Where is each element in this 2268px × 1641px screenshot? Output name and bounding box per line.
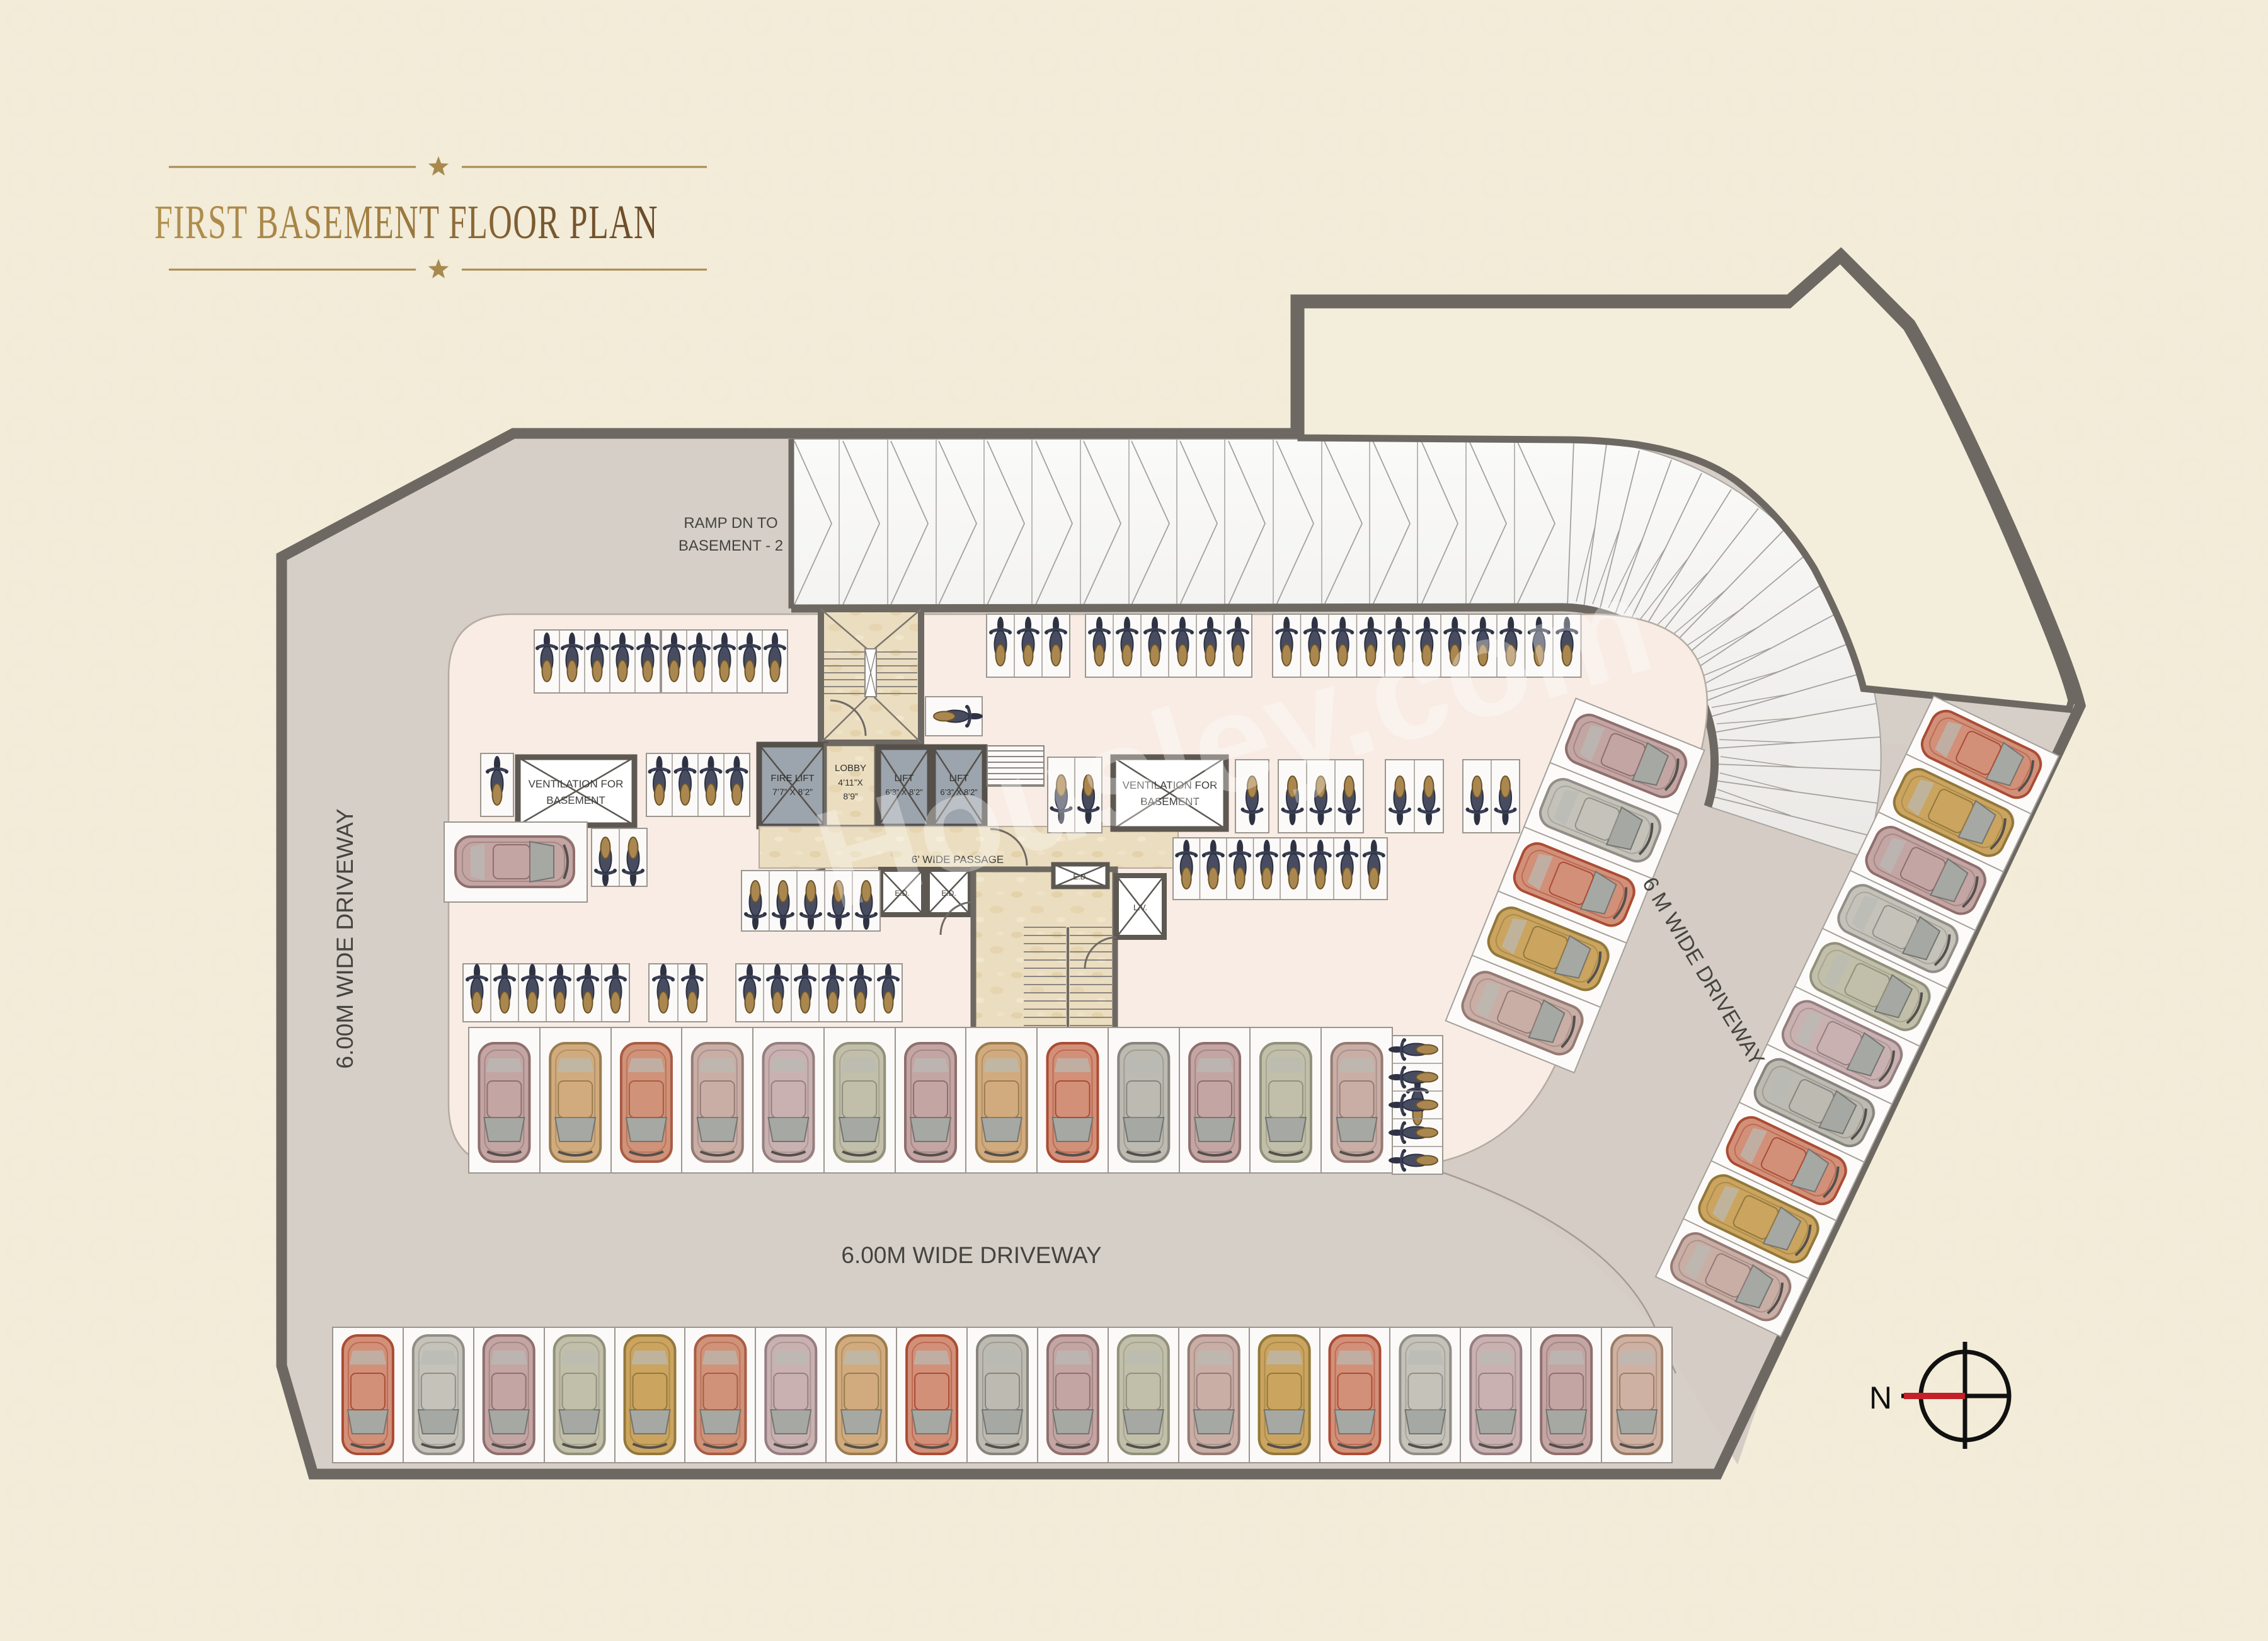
svg-text:VENTILATION FOR: VENTILATION FOR [529,778,624,790]
svg-text:BASEMENT: BASEMENT [546,794,605,806]
svg-text:L.V.: L.V. [1133,903,1147,912]
svg-text:FIRE LIFT: FIRE LIFT [770,773,814,784]
svg-text:N: N [1869,1380,1892,1415]
svg-text:BASEMENT - 2: BASEMENT - 2 [679,537,783,554]
svg-text:RAMP DN TO: RAMP DN TO [684,515,777,532]
svg-text:E.D.: E.D. [1073,872,1087,881]
svg-text:6.00M WIDE DRIVEWAY: 6.00M WIDE DRIVEWAY [332,808,358,1068]
svg-text:FIRST BASEMENT FLOOR PLAN: FIRST BASEMENT FLOOR PLAN [154,196,658,249]
svg-text:6.00M WIDE DRIVEWAY: 6.00M WIDE DRIVEWAY [841,1242,1101,1268]
